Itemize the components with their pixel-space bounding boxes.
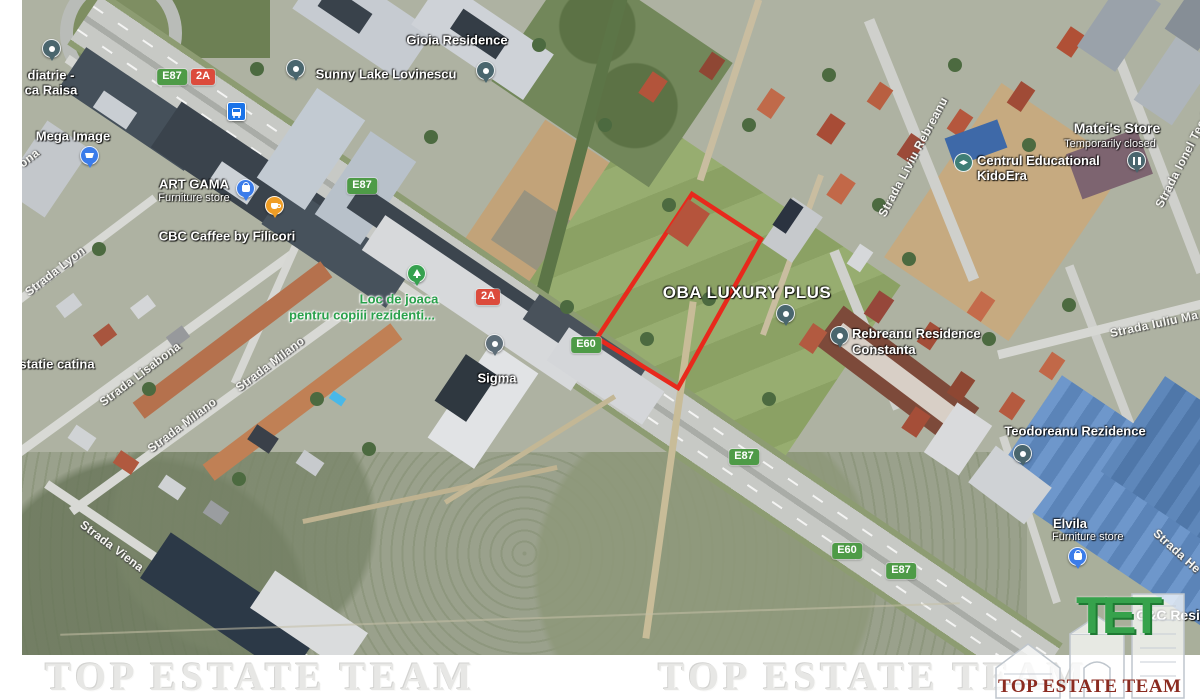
- sunny-lake-pin[interactable]: [286, 59, 305, 78]
- shopping-bag-icon: [242, 185, 250, 192]
- place-label-pediatrie[interactable]: diatrie -: [28, 68, 75, 83]
- place-label-rebreanu[interactable]: Constanta: [852, 342, 916, 357]
- route-badge-2a: 2A: [476, 289, 500, 305]
- elvila-pin[interactable]: [1068, 547, 1087, 566]
- place-label-art-gama[interactable]: ART GAMA: [159, 177, 229, 192]
- cart-icon: [85, 153, 94, 158]
- place-label-sigma[interactable]: Sigma: [477, 371, 516, 386]
- oba-luxury-pin[interactable]: [776, 304, 795, 323]
- place-label-loc-de-joaca[interactable]: Loc de joaca: [360, 292, 439, 307]
- place-label-mega-image[interactable]: Mega Image: [36, 129, 110, 144]
- satellite-map[interactable]: E87 2A E87 2A E60 E87 E60 E87 ona Strada…: [0, 0, 1200, 655]
- pediatrie-pin[interactable]: [42, 39, 61, 58]
- route-badge-e60: E60: [571, 337, 601, 353]
- pause-icon: [1133, 157, 1141, 165]
- route-badge-e60: E60: [832, 543, 862, 559]
- route-badge-2a: 2A: [191, 69, 215, 85]
- place-label-sunny-lake[interactable]: Sunny Lake Lovinescu: [316, 67, 457, 82]
- gioia-pin[interactable]: [476, 61, 495, 80]
- dot-icon: [49, 46, 55, 52]
- route-badge-e87: E87: [729, 449, 759, 465]
- kidoera-icon[interactable]: [954, 153, 973, 172]
- place-label-oba-luxury[interactable]: OBA LUXURY PLUS: [663, 283, 831, 303]
- art-gama-pin[interactable]: [236, 179, 255, 198]
- logo-name: TOP ESTATE TEAM: [998, 676, 1198, 698]
- place-label-gioia[interactable]: Gioia Residence: [406, 33, 507, 48]
- place-label-loc-de-joaca[interactable]: pentru copiii rezidenti...: [289, 308, 435, 323]
- place-label-art-gama[interactable]: Furniture store: [158, 192, 230, 204]
- rebreanu-pin[interactable]: [830, 326, 849, 345]
- place-label-teodoreanu[interactable]: Teodoreanu Rezidence: [1004, 424, 1145, 439]
- agency-logo: TET TOP ESTATE TEAM: [992, 572, 1200, 700]
- page-margin: [0, 0, 22, 700]
- dot-icon: [293, 66, 299, 72]
- dot-icon: [483, 68, 489, 74]
- dot-icon: [783, 311, 789, 317]
- bus-stop-icon[interactable]: [227, 102, 246, 121]
- shopping-bag-icon: [1074, 553, 1082, 560]
- place-label-kidoera[interactable]: Centrul Educational: [977, 153, 1100, 168]
- listing-screenshot: E87 2A E87 2A E60 E87 E60 E87 ona Strada…: [0, 0, 1200, 700]
- route-badge-e87: E87: [347, 178, 377, 194]
- dot-icon: [837, 333, 843, 339]
- dot-icon: [1020, 451, 1026, 457]
- bus-icon: [232, 108, 241, 116]
- mega-image-pin[interactable]: [80, 146, 99, 165]
- route-badge-e87: E87: [886, 563, 916, 579]
- place-label-elvila[interactable]: Furniture store: [1052, 531, 1124, 543]
- place-label-rebreanu[interactable]: Rebreanu Residence: [852, 326, 981, 341]
- parcel-overlay: [0, 0, 1200, 655]
- logo-monogram: TET: [1076, 590, 1156, 642]
- dot-icon: [492, 341, 498, 347]
- place-label-mateis-store[interactable]: Matei's Store: [1074, 120, 1161, 136]
- playground-pin[interactable]: [407, 264, 426, 283]
- place-label-mateis-store[interactable]: Temporarily closed: [1064, 138, 1156, 150]
- place-label-cbc-caffee[interactable]: CBC Caffee by Filicori: [159, 229, 296, 244]
- watermark-text: TOP ESTATE TEAM: [45, 655, 476, 700]
- graduation-cap-icon: [959, 160, 968, 165]
- mateis-store-pin[interactable]: [1127, 151, 1146, 170]
- cbc-caffee-pin[interactable]: [265, 196, 284, 215]
- place-label-pediatrie[interactable]: ca Raisa: [25, 83, 78, 98]
- sigma-pin[interactable]: [485, 334, 504, 353]
- route-badge-e87: E87: [157, 69, 187, 85]
- teodoreanu-pin[interactable]: [1013, 444, 1032, 463]
- place-label-statie-catina[interactable]: statie catina: [19, 357, 94, 372]
- tree-icon: [413, 269, 421, 276]
- place-label-kidoera[interactable]: KidoEra: [977, 168, 1027, 183]
- coffee-cup-icon: [271, 203, 278, 209]
- place-label-elvila[interactable]: Elvila: [1053, 516, 1087, 531]
